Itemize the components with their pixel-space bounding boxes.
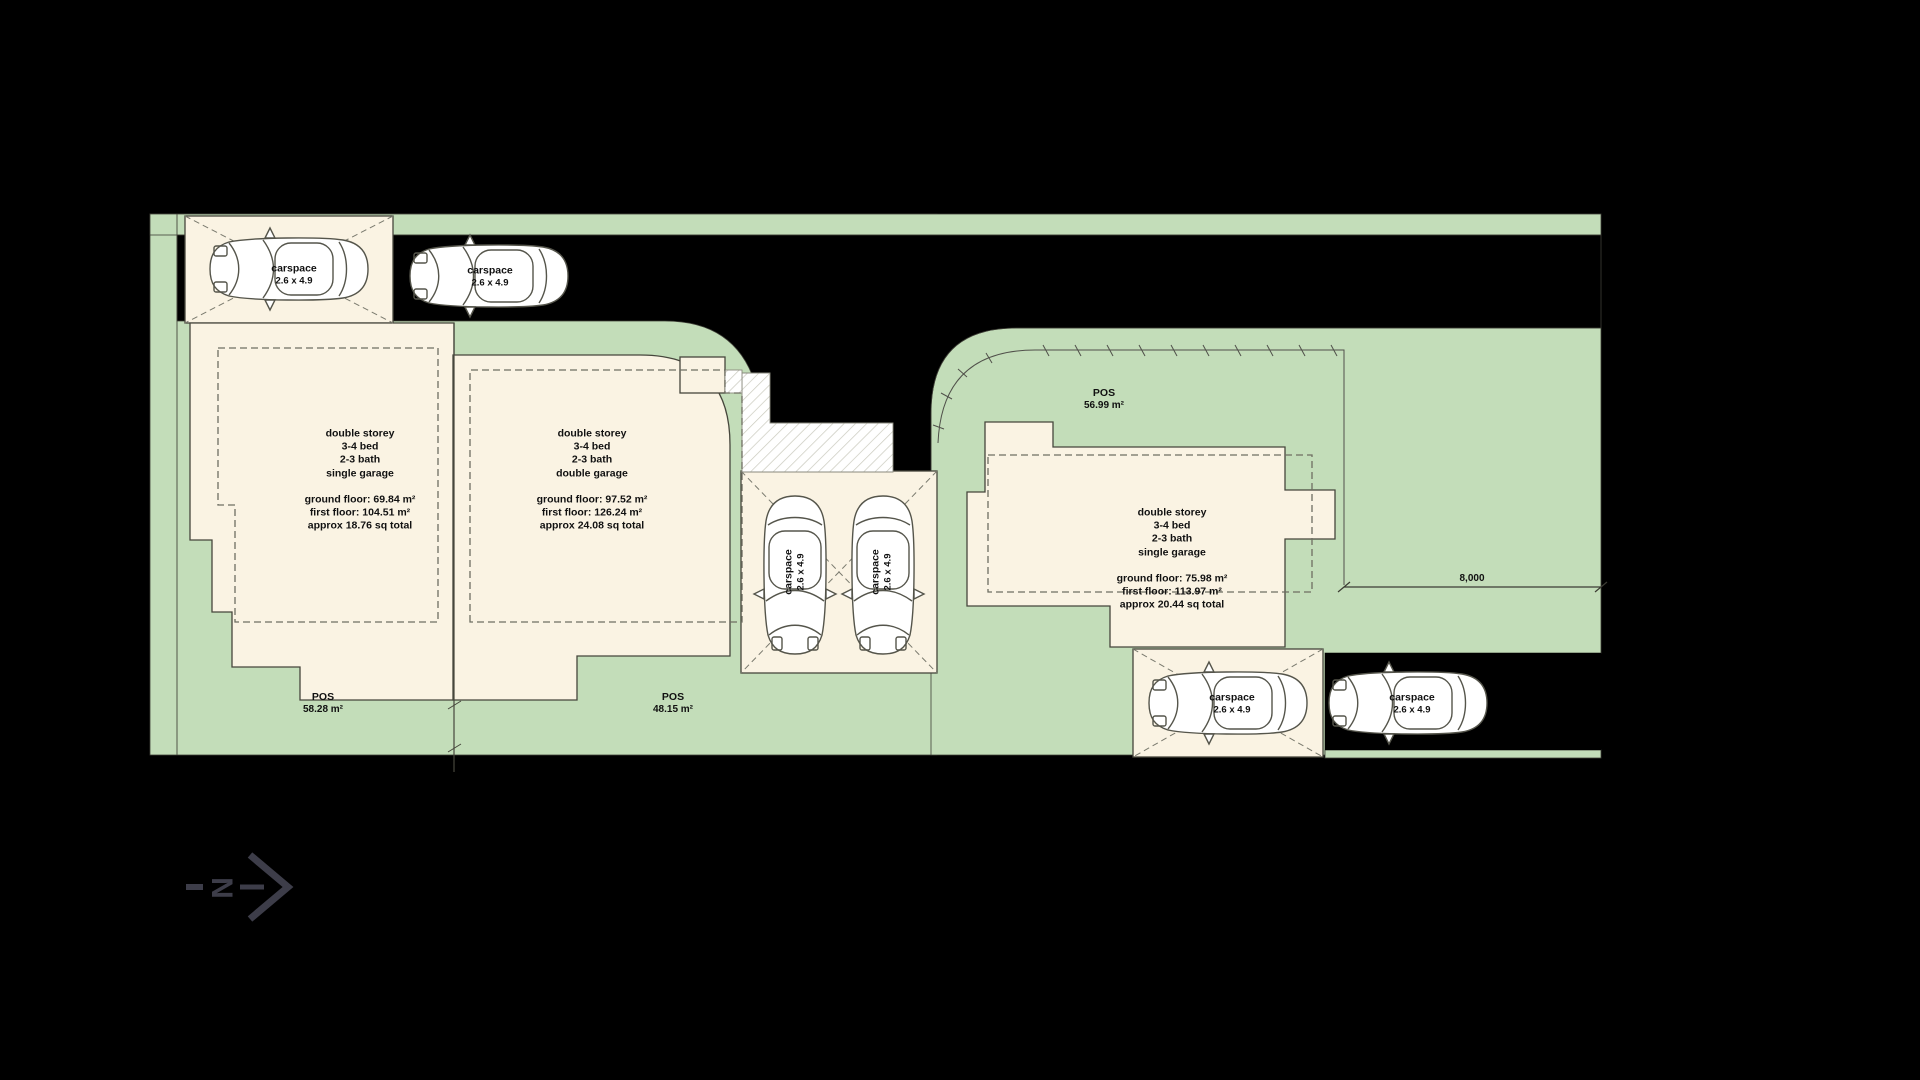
pos-label-middle: POS 48.15 m²	[653, 691, 693, 717]
unit2-description: double storey 3-4 bed 2-3 bath double ga…	[472, 427, 712, 532]
pos-label-right: POS 56.99 m²	[1084, 387, 1124, 413]
carspace-label-topleft: carspace 2.6 x 4.9	[271, 263, 317, 288]
carspace-label-street-bottom: carspace 2.6 x 4.9	[1389, 692, 1435, 717]
carspace-size: 2.6 x 4.9	[271, 276, 317, 288]
carspace-size: 2.6 x 4.9	[796, 549, 808, 595]
site-plan-canvas	[0, 0, 1920, 1080]
site-plan: carspace 2.6 x 4.9 carspace 2.6 x 4.9 ca…	[0, 0, 1920, 1080]
unit-total-area: approx 24.08 sq total	[472, 520, 712, 533]
unit-beds: 3-4 bed	[472, 440, 712, 453]
unit3-description: double storey 3-4 bed 2-3 bath single ga…	[1052, 506, 1292, 611]
carspace-size: 2.6 x 4.9	[1209, 705, 1255, 717]
pos-area-value: 56.99 m²	[1084, 400, 1124, 413]
carspace-name: carspace	[1209, 692, 1255, 705]
unit-total-area: approx 20.44 sq total	[1052, 599, 1292, 612]
carspace-name: carspace	[783, 549, 796, 595]
unit-garage: single garage	[240, 467, 480, 480]
unit-garage: single garage	[1052, 546, 1292, 559]
unit-garage: double garage	[472, 467, 712, 480]
unit-ground-floor-area: ground floor: 69.84 m²	[240, 493, 480, 506]
carspace-label-street-top: carspace 2.6 x 4.9	[467, 265, 513, 290]
unit-first-floor-area: first floor: 126.24 m²	[472, 506, 712, 519]
unit-total-area: approx 18.76 sq total	[240, 520, 480, 533]
unit2-porch	[680, 357, 725, 393]
unit-type: double storey	[472, 427, 712, 440]
carspace-size: 2.6 x 4.9	[467, 278, 513, 290]
unit-first-floor-area: first floor: 113.97 m²	[1052, 585, 1292, 598]
carspace-label-central-right: carspace 2.6 x 4.9	[870, 549, 895, 595]
pos-title: POS	[303, 691, 343, 704]
carspace-size: 2.6 x 4.9	[1389, 705, 1435, 717]
carspace-name: carspace	[1389, 692, 1435, 705]
unit-baths: 2-3 bath	[472, 454, 712, 467]
carspace-label-right-lot: carspace 2.6 x 4.9	[1209, 692, 1255, 717]
pos-area-value: 58.28 m²	[303, 704, 343, 717]
pos-title: POS	[1084, 387, 1124, 400]
north-letter: N	[202, 877, 240, 899]
pos-label-left: POS 58.28 m²	[303, 691, 343, 717]
carspace-name: carspace	[870, 549, 883, 595]
carspace-size: 2.6 x 4.9	[883, 549, 895, 595]
unit-type: double storey	[1052, 506, 1292, 519]
unit-beds: 3-4 bed	[1052, 519, 1292, 532]
unit1-description: double storey 3-4 bed 2-3 bath single ga…	[240, 427, 480, 532]
carspace-label-central-left: carspace 2.6 x 4.9	[783, 549, 808, 595]
unit-beds: 3-4 bed	[240, 440, 480, 453]
unit-baths: 2-3 bath	[1052, 533, 1292, 546]
unit-ground-floor-area: ground floor: 75.98 m²	[1052, 572, 1292, 585]
carspace-name: carspace	[467, 265, 513, 278]
carspace-name: carspace	[271, 263, 317, 276]
dimension-value: 8,000	[1459, 573, 1484, 586]
pos-area-value: 48.15 m²	[653, 704, 693, 717]
unit-ground-floor-area: ground floor: 97.52 m²	[472, 493, 712, 506]
unit-baths: 2-3 bath	[240, 454, 480, 467]
porch-hatch	[725, 370, 742, 393]
pos-title: POS	[653, 691, 693, 704]
unit-type: double storey	[240, 427, 480, 440]
unit-first-floor-area: first floor: 104.51 m²	[240, 506, 480, 519]
grass-bottom-right-verge	[1325, 750, 1601, 758]
